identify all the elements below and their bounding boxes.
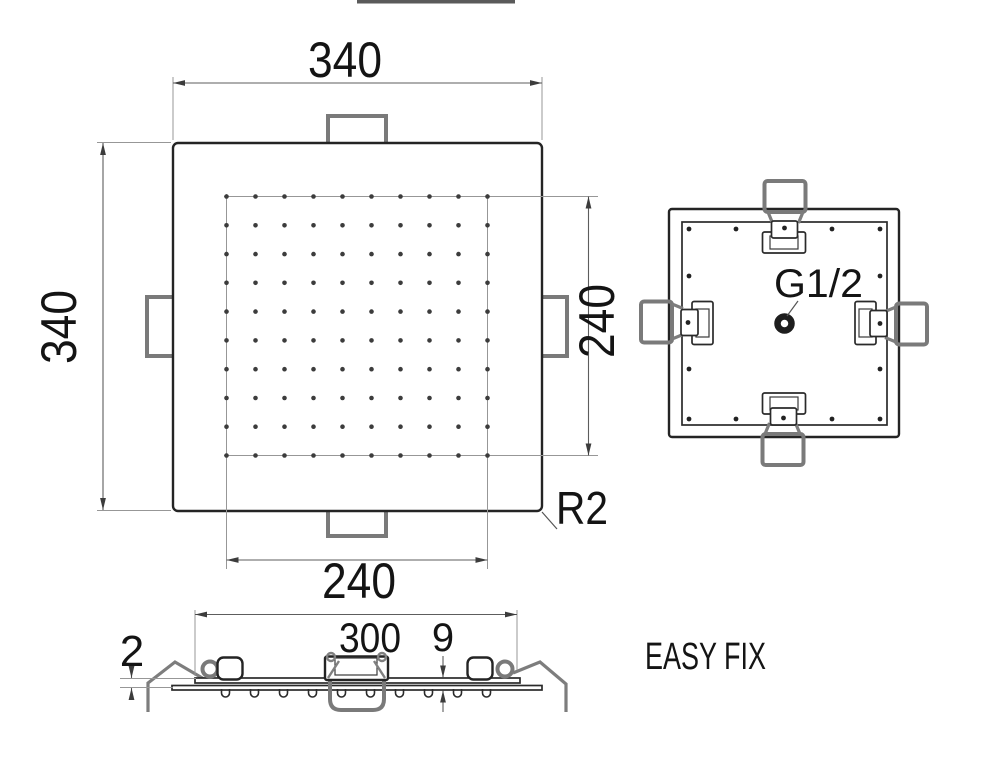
side-clip-right-ring [498, 662, 513, 677]
dim-label-thickness: 2 [120, 627, 144, 676]
caption-easy-fix: EASY FIX [645, 636, 766, 678]
front-tab-right [541, 297, 567, 356]
dim-label-nozzle-height: 240 [569, 284, 625, 358]
dim-label-width: 340 [308, 32, 382, 88]
side-clip-left-ring [203, 662, 218, 677]
front-tab-bottom [328, 509, 386, 536]
side-view: 300 9 2 [120, 610, 566, 712]
cropped-title-rule [357, 0, 515, 4]
front-tab-top [328, 116, 386, 144]
dim-label-corner-radius: R2 [556, 482, 608, 534]
dim-label-height: 340 [31, 290, 87, 364]
dim-label-depth: 9 [432, 616, 454, 660]
rear-view: G1/2 [641, 181, 927, 465]
dim-label-clip-span: 300 [339, 614, 401, 661]
front-tab-left [147, 297, 174, 356]
face-plate [172, 686, 542, 691]
drawing-page: 340 340 240 240 R2 G1/2 [0, 0, 1000, 757]
side-clip-right-body [468, 658, 493, 680]
side-clip-left-body [218, 658, 243, 680]
front-view: 340 340 240 240 R2 [31, 32, 625, 609]
connection-label: G1/2 [774, 262, 863, 306]
technical-drawing: 340 340 240 240 R2 G1/2 [0, 0, 1000, 757]
dim-label-nozzle-width: 240 [322, 553, 396, 609]
